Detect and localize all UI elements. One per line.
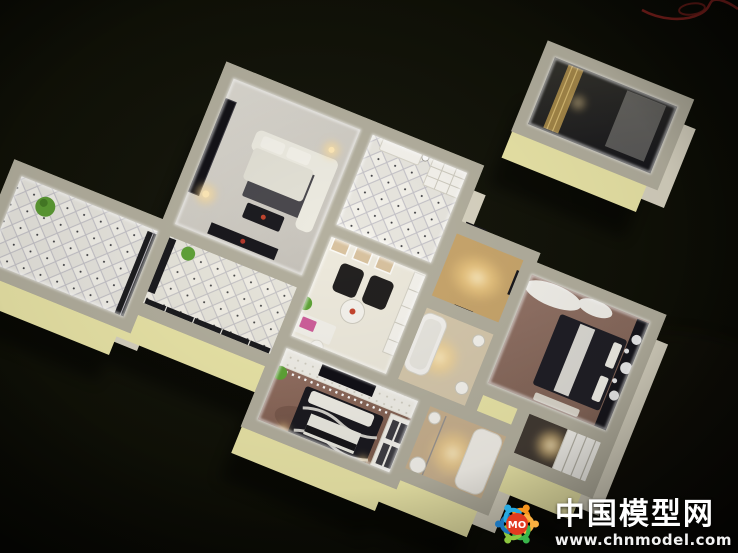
logo-monogram: MO	[508, 520, 526, 531]
site-url: www.chnmodel.com	[555, 533, 732, 548]
watermark: MO 中国模型网 www.chnmodel.com	[488, 497, 732, 551]
watermark-text: 中国模型网 www.chnmodel.com	[555, 500, 732, 548]
scale-model-scene	[0, 0, 738, 553]
site-name: 中国模型网	[555, 500, 715, 530]
chnmodel-logo: MO	[488, 497, 546, 551]
photo-of-architectural-interior-model: MO 中国模型网 www.chnmodel.com	[0, 0, 738, 553]
